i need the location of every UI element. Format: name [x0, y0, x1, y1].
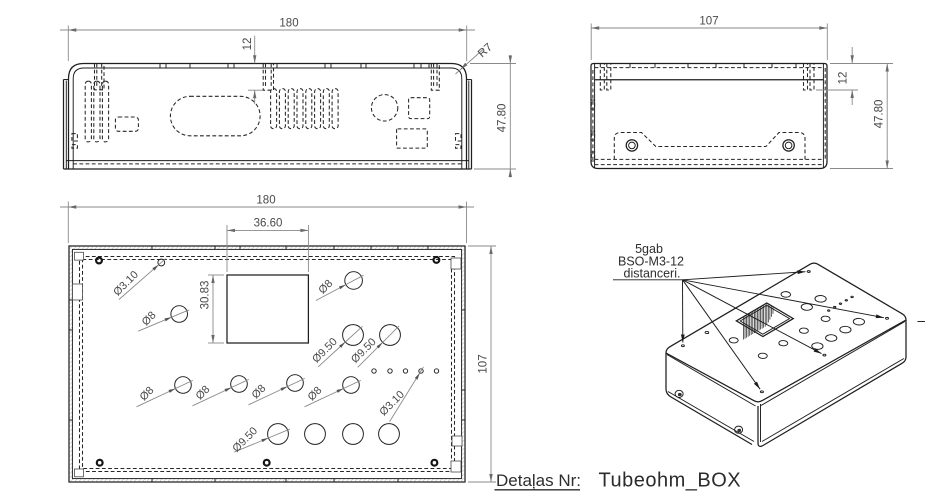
svg-text:12: 12: [838, 72, 850, 85]
svg-text:30.83: 30.83: [200, 281, 212, 310]
svg-text:107: 107: [699, 16, 718, 28]
svg-text:36.60: 36.60: [254, 217, 283, 229]
svg-text:distanceri.: distanceri.: [624, 267, 681, 281]
svg-text:Detaļas Nr:: Detaļas Nr:: [496, 471, 581, 490]
svg-text:12: 12: [242, 38, 254, 51]
svg-text:Tubeohm_BOX: Tubeohm_BOX: [599, 470, 742, 492]
svg-text:47.80: 47.80: [873, 100, 885, 129]
svg-text:180: 180: [256, 195, 275, 207]
svg-text:47.80: 47.80: [497, 104, 509, 133]
svg-text:180: 180: [279, 18, 298, 30]
svg-text:107: 107: [478, 354, 490, 373]
